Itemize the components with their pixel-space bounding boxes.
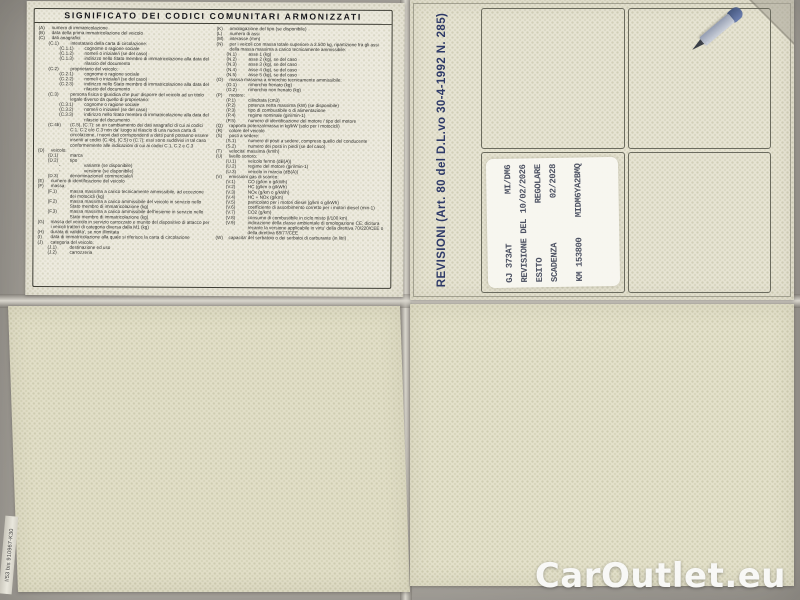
legend-item: (J.2)carrozzeria xyxy=(37,250,209,256)
legend-item: (V.9)indicazione della classe ambientale… xyxy=(216,220,388,236)
document-photo: SIGNIFICATO DEI CODICI COMUNITARI ARMONI… xyxy=(0,0,800,600)
watermark: CarOutlet.eu xyxy=(535,556,786,596)
legend-column-right: (K)omologazione del tipo (se disponibile… xyxy=(215,26,388,286)
revision-box-2 xyxy=(628,8,771,149)
revision-box-4 xyxy=(628,152,771,293)
legend-title: SIGNIFICATO DEI CODICI COMUNITARI ARMONI… xyxy=(35,9,392,25)
stamp-line: KM 153800MIDM6YA2BMQ xyxy=(573,163,585,281)
legend-page: SIGNIFICATO DEI CODICI COMUNITARI ARMONI… xyxy=(25,1,405,297)
blank-page-right xyxy=(410,304,794,586)
pen-body-icon xyxy=(699,13,735,46)
pen-object xyxy=(687,4,745,56)
legend-columns: (A)numero di immatricolazione(B)data del… xyxy=(37,25,388,286)
revision-stamp: GJ 373ATMI/DM6REVISIONE DEL10/02/2026ESI… xyxy=(486,157,620,288)
legend-frame: SIGNIFICATO DEI CODICI COMUNITARI ARMONI… xyxy=(32,8,392,289)
document-edge-strip: I/53 bis 910967-K30 xyxy=(0,516,18,595)
stamp-line: ESITOREGOLARE xyxy=(533,164,545,282)
blank-page-left xyxy=(8,306,410,592)
revision-box-1 xyxy=(481,8,625,149)
legend-column-left: (A)numero di immatricolazione(B)data del… xyxy=(37,25,210,285)
legend-item: (W)capacita' del serbatoio o dei serbato… xyxy=(216,235,388,241)
legend-item: (C.4b)(C.5), (C.7): se un cambiamento de… xyxy=(38,122,210,148)
revision-box-3: GJ 373ATMI/DM6REVISIONE DEL10/02/2026ESI… xyxy=(481,152,625,293)
revision-side-label: REVISIONI (Art. 80 del D.L.vo 30-4-1992 … xyxy=(436,13,448,287)
stamp-line: SCADENZA02/2028 xyxy=(548,163,560,281)
pen-tip-icon xyxy=(691,40,705,53)
revision-page: REVISIONI (Art. 80 del D.L.vo 30-4-1992 … xyxy=(410,0,794,300)
stamp-line: GJ 373ATMI/DM6 xyxy=(503,164,515,282)
form-code: I/53 bis 910967-K30 xyxy=(3,528,14,582)
stamp-line: REVISIONE DEL10/02/2026 xyxy=(518,164,530,282)
revision-stamp-text: GJ 373ATMI/DM6REVISIONE DEL10/02/2026ESI… xyxy=(503,163,603,283)
